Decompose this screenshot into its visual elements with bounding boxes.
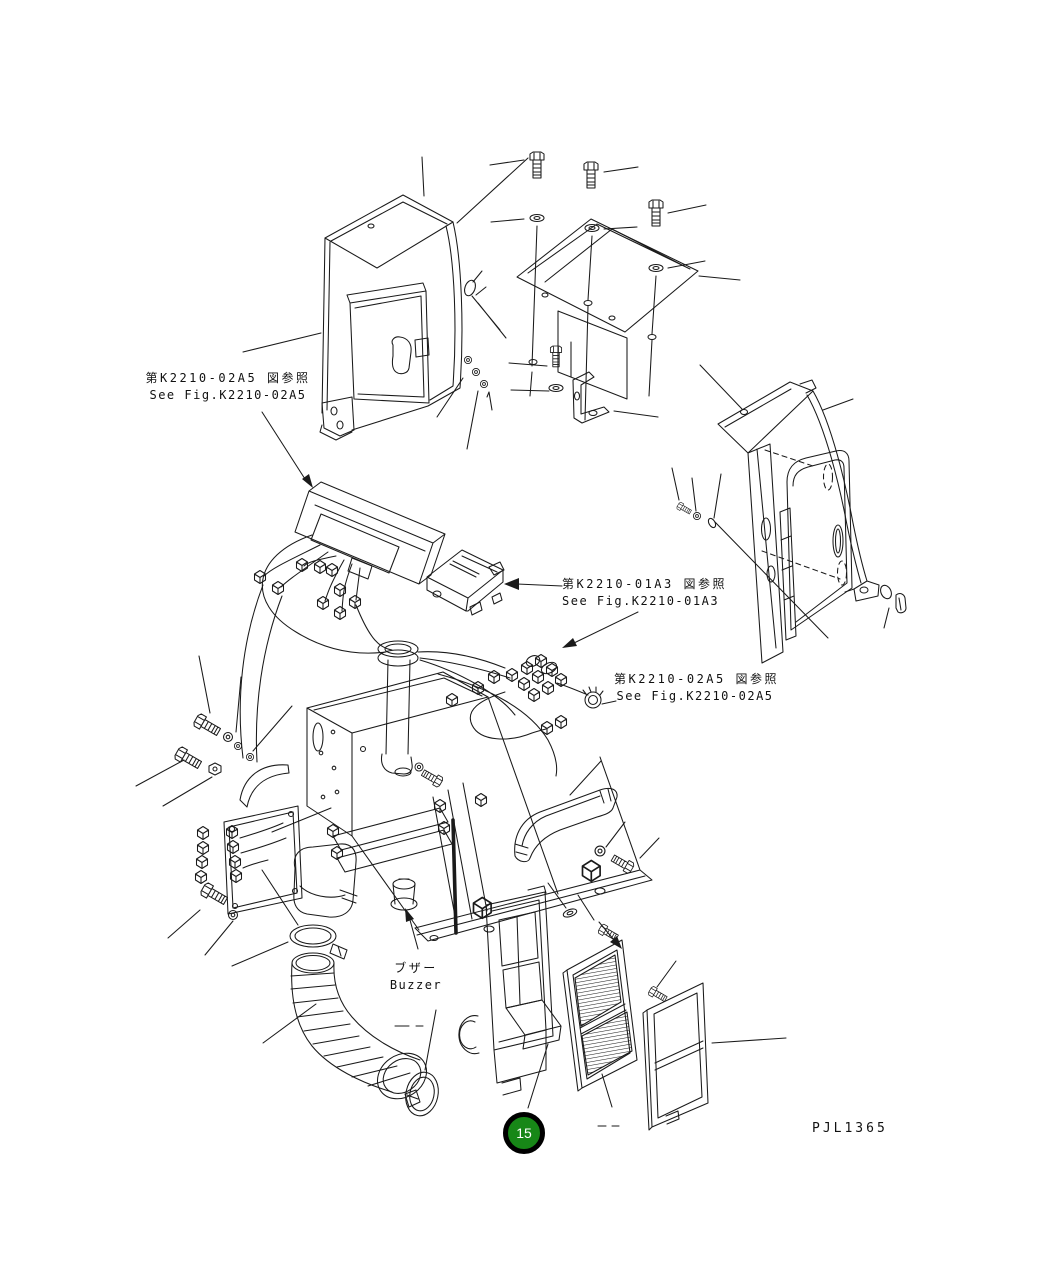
unit-hole [335, 790, 339, 794]
cover-sweep-edge [807, 391, 867, 583]
leader-line [574, 612, 638, 643]
connector-icon [447, 694, 458, 707]
bolt-icon [649, 200, 663, 226]
bolt-icon [530, 152, 544, 178]
connector-icon [198, 827, 209, 840]
pipe-elbow [395, 768, 411, 776]
duct-windows [499, 912, 542, 1008]
unit-foot [474, 898, 492, 919]
leader-line [570, 761, 659, 858]
hidden-slot [824, 464, 833, 490]
connector-icon [196, 871, 207, 884]
cover-top-face [325, 195, 453, 268]
ref-label-harness: 第K2210-02A5 図参照 See Fig.K2210-02A5 [614, 671, 776, 705]
buzzer-label-en: Buzzer [378, 977, 454, 994]
unit-slot [313, 723, 323, 751]
cover-door [347, 283, 429, 403]
washer-icon [549, 385, 563, 392]
slot-hole [762, 518, 771, 540]
leader-line [700, 365, 742, 409]
cover-back-sheet [748, 444, 783, 663]
washer-icon [246, 753, 253, 760]
connector-icon [328, 825, 339, 838]
connector-icon [435, 800, 446, 813]
leader-line [602, 1074, 612, 1107]
plate-wires [240, 823, 286, 868]
clip [463, 279, 478, 297]
connector-icon [556, 716, 567, 729]
cover-left-edge [322, 238, 330, 413]
leader-line [472, 271, 506, 338]
clamp-screw [330, 944, 347, 959]
harness-bracket [240, 765, 289, 807]
unit-hole [321, 795, 325, 799]
bolt-icon [676, 502, 692, 516]
buzzer-label: ブザー Buzzer [378, 960, 454, 994]
leader-line [410, 920, 418, 949]
washer-icon [595, 846, 605, 856]
filter-frame-open [598, 983, 786, 1130]
leader-line [517, 584, 562, 586]
cover-top-face [718, 380, 816, 453]
hose-clamp [407, 1075, 438, 1113]
ref-label-console-en: See Fig.K2210-02A5 [145, 387, 311, 404]
blower-boss [460, 1021, 476, 1049]
harness-wires [240, 585, 282, 762]
washer-icon [472, 368, 479, 375]
connector-cluster [418, 612, 638, 739]
plate-hole [584, 301, 592, 306]
blower-motor [232, 844, 357, 1043]
leader-line [823, 399, 853, 410]
cover-foot [845, 581, 879, 601]
plate-outline [224, 806, 302, 914]
top-bolts-hardware [490, 152, 706, 420]
hose-clamp [295, 928, 331, 944]
connector-icon [231, 870, 242, 883]
plate-sheet [558, 311, 627, 399]
bolt-icon [420, 768, 444, 788]
connector-icon [519, 678, 530, 691]
bracket-hole [589, 411, 597, 416]
ref-label-harness-jp: 第K2210-02A5 図参照 [614, 671, 776, 688]
leader-line [136, 656, 292, 955]
ref-label-controller: 第K2210-01A3 図参照 See Fig.K2210-01A3 [562, 576, 717, 610]
filter-media [575, 955, 621, 1026]
bracket-hole [575, 392, 580, 400]
drain-pipe [386, 660, 410, 754]
parts-diagram-page: 第K2210-02A5 図参照 See Fig.K2210-02A5 第K221… [0, 0, 1052, 1287]
bolt-icon [610, 853, 635, 874]
ref-label-console-jp: 第K2210-02A5 図参照 [145, 370, 311, 387]
harness-wires [262, 535, 392, 653]
leader-line [243, 157, 528, 352]
grommet [378, 641, 418, 657]
connector-icon [529, 689, 540, 702]
washer-icon [562, 907, 578, 918]
plate-ridge [528, 224, 690, 282]
connector-icon [318, 597, 329, 610]
connector-icon [273, 582, 284, 595]
plate-hole [529, 360, 537, 365]
leader-line [262, 412, 305, 479]
drawing-code: PJL1365 [812, 1121, 888, 1136]
leader-line [699, 276, 740, 280]
cover-hole [741, 410, 748, 415]
plate-hole [609, 316, 615, 320]
right-cover-panel [672, 365, 906, 663]
bolt-icon [174, 746, 204, 771]
frame-outline [643, 983, 708, 1130]
hidden-slot [838, 561, 847, 585]
exploded-view-drawing [0, 0, 1052, 1287]
unit-left-face [307, 708, 352, 836]
bolt-icon [193, 713, 223, 738]
connector-icon [476, 794, 487, 807]
cover-edges [352, 222, 462, 430]
hose-clamp [402, 1069, 442, 1119]
cover-bracket [320, 397, 354, 440]
leader-line [528, 1044, 548, 1108]
unit-hole [332, 766, 336, 770]
door-handle [392, 337, 411, 374]
washer-icon [649, 265, 663, 272]
panel-body [295, 482, 445, 584]
grommet [378, 650, 418, 666]
cover-door [787, 450, 852, 630]
washer-icon [234, 742, 241, 749]
hose-opening [296, 956, 330, 971]
foot-hole [860, 587, 868, 593]
connector-icon [507, 669, 518, 682]
ref-label-harness-en: See Fig.K2210-02A5 [614, 688, 776, 705]
ref-label-controller-en: See Fig.K2210-01A3 [562, 593, 717, 610]
connector-icon [547, 664, 558, 677]
air-duct [515, 761, 659, 874]
washer-icon [224, 733, 233, 742]
controller-body [427, 550, 503, 611]
washer-icon [693, 512, 700, 519]
connector-icon [350, 596, 361, 609]
connector-icon [335, 607, 346, 620]
plate-hole [648, 335, 656, 340]
leader-line [437, 378, 492, 449]
cluster-wires [418, 652, 588, 739]
connector-icon [198, 842, 209, 855]
connector-icon [327, 564, 338, 577]
leader-line [490, 160, 706, 268]
unit-hole [319, 751, 323, 755]
leader-line [657, 961, 676, 987]
bolt-icon [200, 882, 230, 907]
left-cover-panel [243, 157, 528, 449]
washer-icon [464, 356, 471, 363]
bolt-icon [584, 162, 598, 188]
ref-label-console: 第K2210-02A5 図参照 See Fig.K2210-02A5 [145, 370, 311, 404]
cover-hole [368, 224, 374, 228]
terminal-plate [196, 585, 332, 925]
frame-bar [655, 1041, 703, 1124]
connector-icon [489, 671, 500, 684]
bracket-hole [331, 407, 337, 415]
connector-icon [543, 682, 554, 695]
washer-icon [480, 380, 487, 387]
leader-line [715, 522, 828, 638]
left-hardware [136, 656, 292, 955]
door-slot [836, 529, 841, 553]
foot-hole [484, 926, 494, 932]
buzzer-part [391, 879, 418, 949]
bracket-hole [337, 421, 343, 429]
connector-icon [228, 841, 239, 854]
round-connector [589, 696, 598, 705]
buzzer-label-jp: ブザー [378, 960, 454, 977]
part-callout-15[interactable]: 15 [503, 1112, 545, 1154]
nut [209, 763, 221, 775]
hidden-line [762, 450, 840, 579]
buzzer-body [393, 879, 415, 904]
unit-hole [331, 730, 335, 734]
connector-icon [332, 847, 343, 860]
connector-icon [227, 826, 238, 839]
duct-detail [515, 789, 611, 855]
mounting-rails [333, 808, 452, 872]
pin [707, 517, 717, 529]
connector-icon [315, 561, 326, 574]
foot-hole [595, 888, 605, 894]
ref-label-controller-jp: 第K2210-01A3 図参照 [562, 576, 717, 593]
plate-outline [517, 219, 698, 332]
duct-cover [459, 886, 561, 1108]
wire-harness [255, 535, 444, 788]
plate-hole [230, 827, 235, 832]
bolt-icon [550, 346, 561, 367]
washer-icon [530, 215, 544, 222]
console-panel [262, 412, 445, 584]
buzzer-top [393, 879, 415, 889]
pipe-elbow [381, 754, 412, 774]
nut-hole [213, 767, 217, 771]
part-callout-number: 15 [516, 1125, 532, 1141]
washer-icon [415, 763, 423, 771]
unit-hole [361, 747, 366, 752]
unit-seal-bar [453, 820, 456, 933]
door-slot [833, 525, 843, 557]
controller-box [427, 550, 562, 615]
connector-icon [197, 856, 208, 869]
plate-hole [542, 293, 548, 297]
washer-icon [879, 584, 894, 601]
duct-cover-panel [486, 886, 553, 1050]
unit-foot [583, 861, 601, 882]
